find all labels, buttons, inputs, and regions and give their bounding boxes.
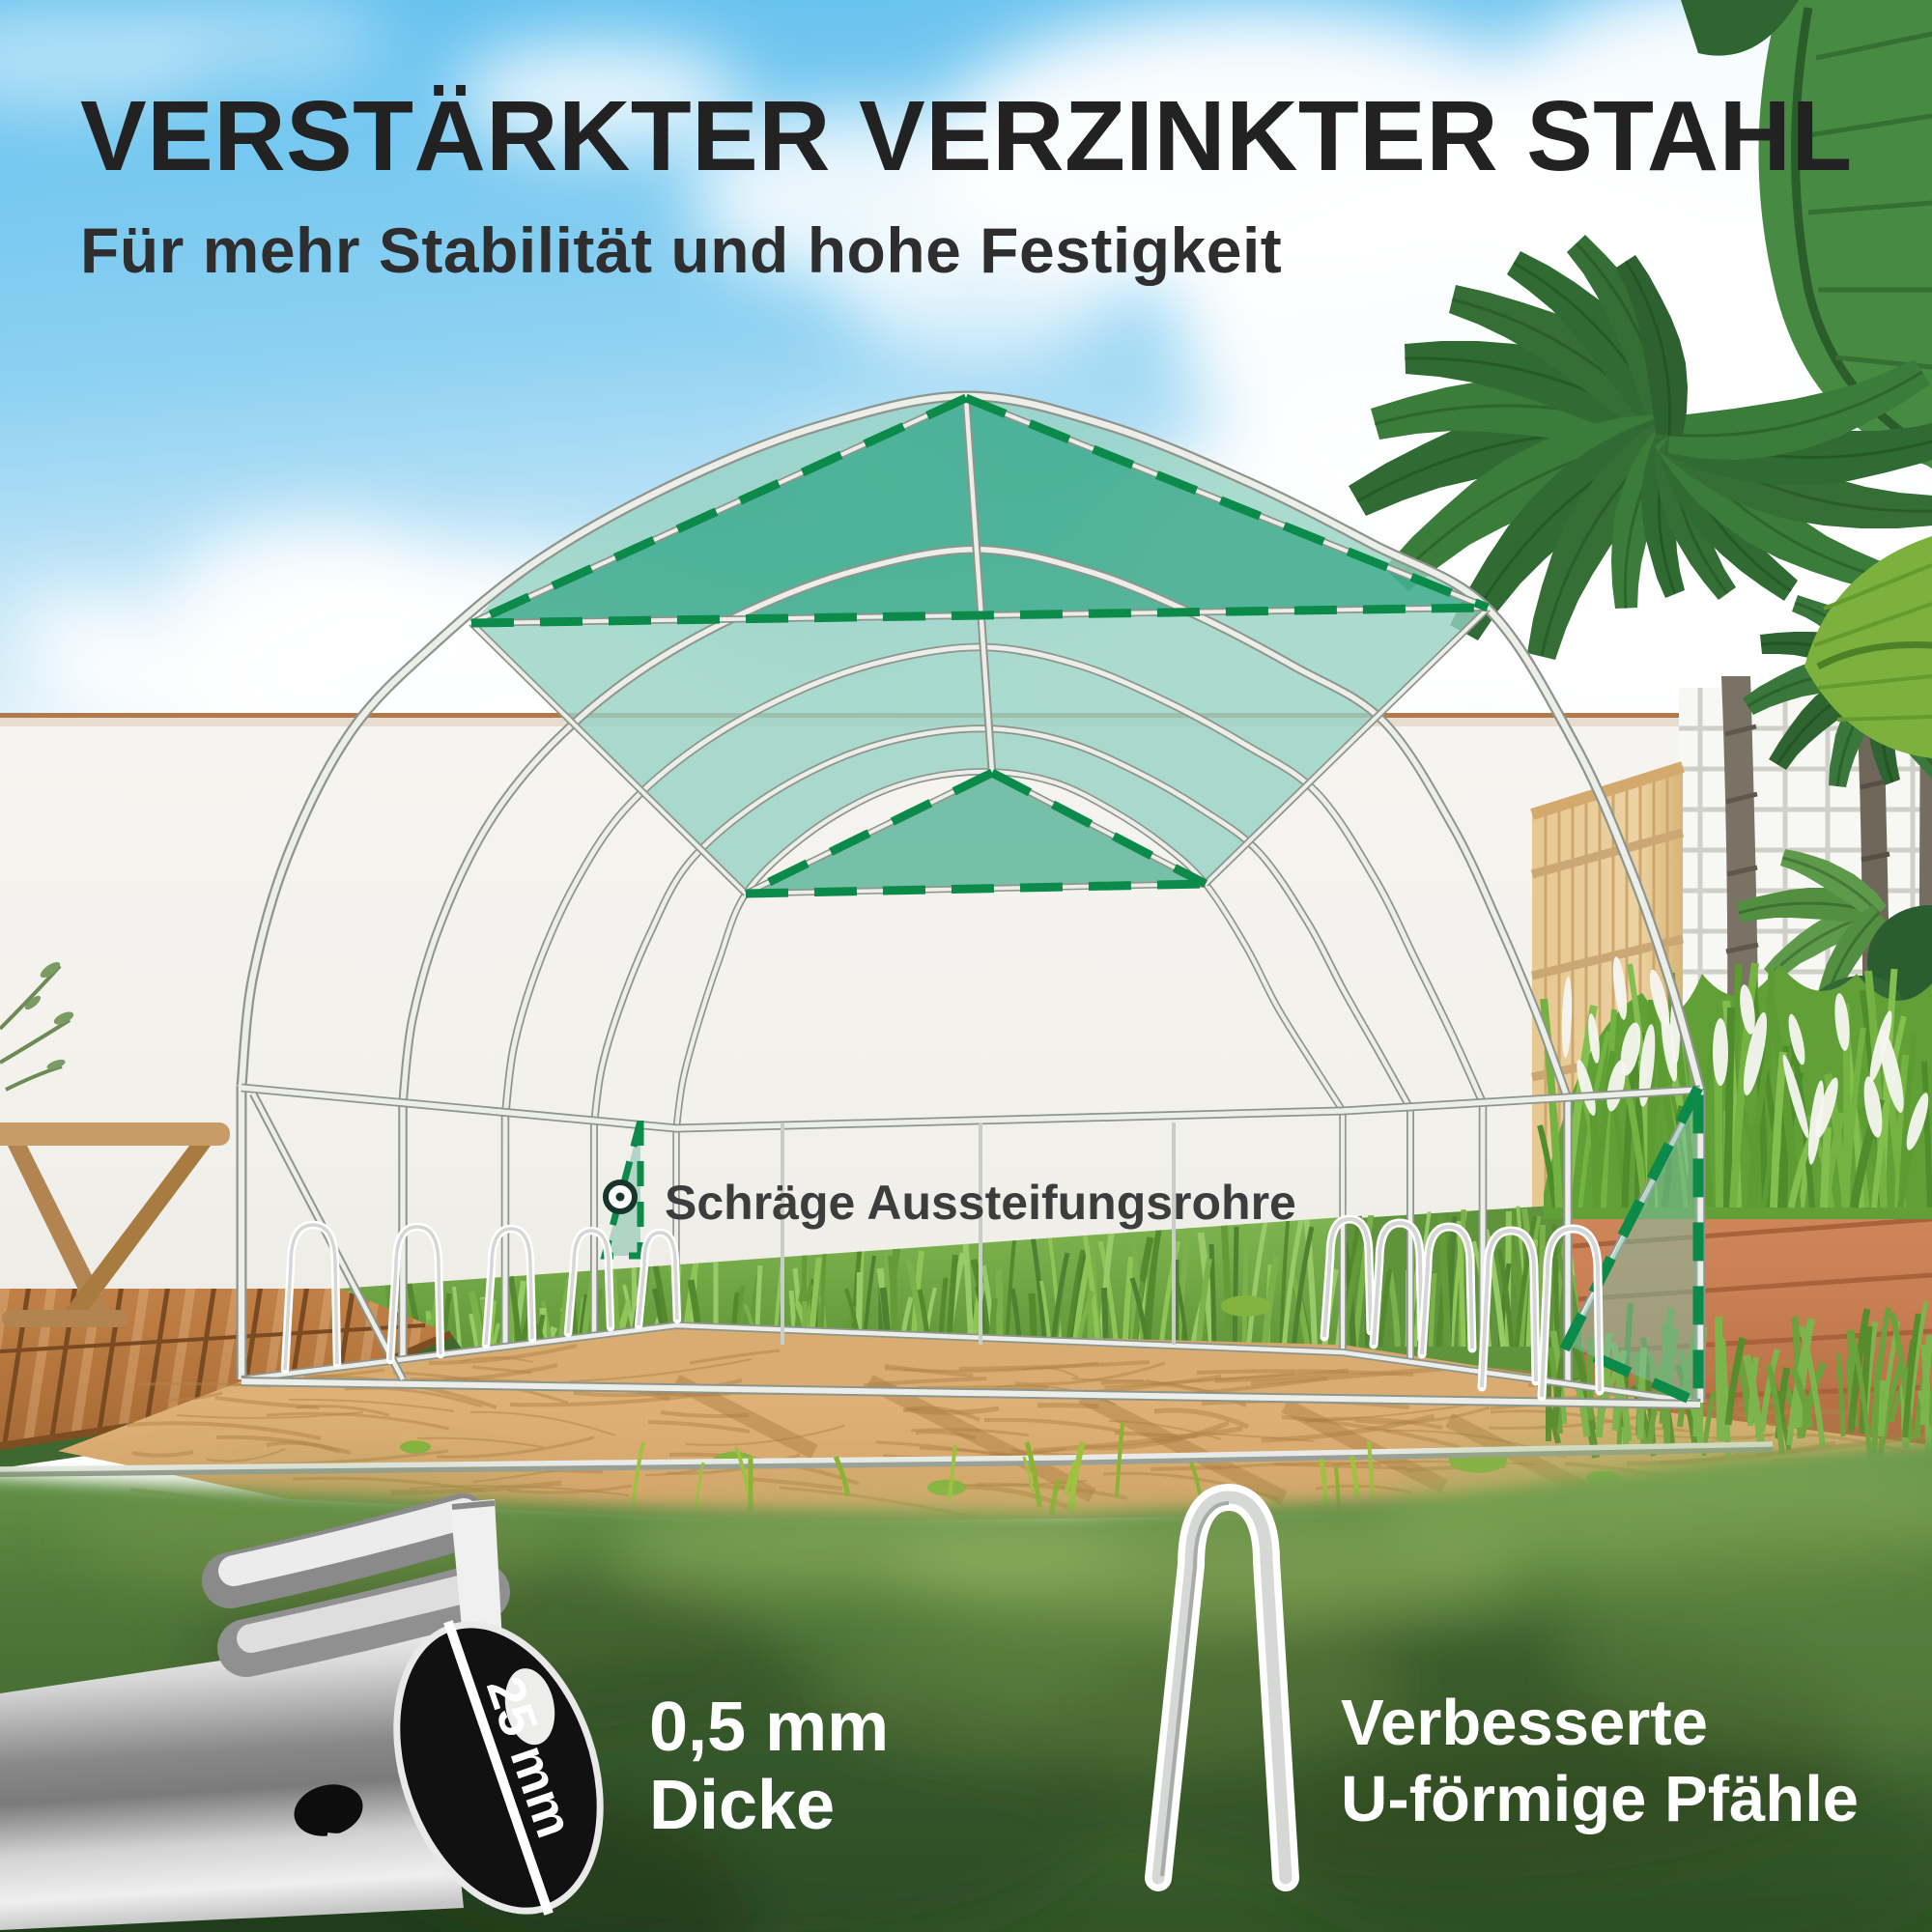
svg-text:Schräge Aussteifungsrohre: Schräge Aussteifungsrohre xyxy=(665,1176,1296,1230)
svg-text:0,5 mm: 0,5 mm xyxy=(649,1689,889,1766)
svg-text:Dicke: Dicke xyxy=(649,1767,835,1844)
svg-text:Für mehr Stabilität und hohe F: Für mehr Stabilität und hohe Festigkeit xyxy=(80,214,1282,286)
svg-text:VERSTÄRKTER VERZINKTER STAHL: VERSTÄRKTER VERZINKTER STAHL xyxy=(80,80,1853,191)
svg-text:Verbesserte: Verbesserte xyxy=(1341,1687,1708,1759)
svg-text:U-förmige Pfähle: U-förmige Pfähle xyxy=(1341,1763,1859,1835)
